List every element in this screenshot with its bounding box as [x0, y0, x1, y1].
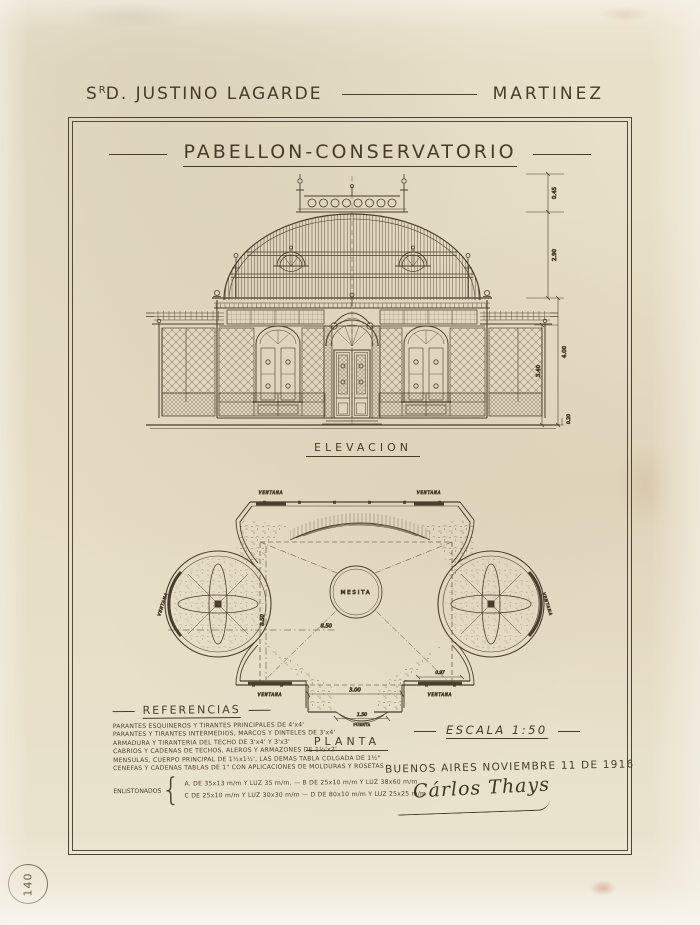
plan-dim-depth: 8.50	[260, 614, 266, 626]
title-dash-left	[109, 154, 167, 155]
enlistonados-label: ENLISTONADOS	[113, 788, 161, 795]
owner-name: SRD. JUSTINO LAGARDE	[86, 84, 322, 104]
dim-wall-outer: 4.00	[562, 345, 568, 358]
wing-left	[146, 311, 224, 418]
owner-title-row: SRD. JUSTINO LAGARDE MARTINEZ	[86, 84, 604, 104]
ground-line	[146, 425, 560, 429]
owner-divider-line	[342, 94, 476, 95]
owner-surname: MARTINEZ	[493, 84, 604, 104]
scale-dash-left	[414, 731, 436, 732]
references-block: REFERENCIAS PARANTES ESQUINEROS Y TIRANT…	[113, 702, 382, 807]
plan-window-left-circle: VENTANA	[156, 592, 168, 617]
dim-plinth: 0.20	[566, 414, 572, 424]
dim-crest: 0.45	[552, 186, 558, 199]
plan-window-bottom-right: VENTANA	[428, 692, 452, 697]
plan-window-bottom-left: VENTANA	[258, 692, 282, 697]
drawing-sheet: SRD. JUSTINO LAGARDE MARTINEZ PABELLON-C…	[0, 0, 700, 925]
wing-right	[480, 311, 558, 418]
enlistonados-row: ENLISTONADOS { A. DE 35x13 m/m Y LUZ 35 …	[113, 774, 381, 806]
plan-dim-width: 8.50	[320, 624, 332, 630]
archive-number-stamp: 140	[8, 864, 48, 904]
scale-row: ESCALA 1:50	[414, 723, 580, 739]
references-title: REFERENCIAS	[143, 703, 241, 719]
plan-dim-side: 0.97	[435, 670, 445, 675]
owner-sup: R	[99, 85, 106, 96]
scale-label: ESCALA 1:50	[446, 723, 548, 739]
references-dash-right	[249, 710, 271, 711]
scale-dash-right	[558, 731, 580, 732]
plan-center-label: MESITA	[341, 590, 372, 596]
paper-stain	[600, 6, 650, 22]
elevation-label: ELEVACION	[288, 441, 438, 457]
enlistonados-line: C DE 25x10 m/m Y LUZ 30x30 m/m — D DE 80…	[184, 789, 426, 803]
main-title-row: PABELLON-CONSERVATORIO	[0, 141, 700, 167]
title-dash-right	[533, 154, 591, 155]
page-title: PABELLON-CONSERVATORIO	[183, 141, 516, 167]
plan-dim-entry: 3.00	[349, 688, 361, 694]
elevation-drawing: 0.45 2.90 4.00 3.40 0.20	[128, 166, 578, 446]
reference-line: CENEFAS Y CADENAS TABLAS DE 1" CON APLIC…	[113, 763, 381, 774]
enlistonados-brace: {	[161, 775, 180, 807]
owner-fullname: JUSTINO LAGARDE	[136, 84, 323, 104]
dome	[224, 214, 480, 300]
references-title-row: REFERENCIAS	[113, 702, 381, 719]
plan-window-top-right: VENTANA	[417, 490, 441, 495]
references-dash-left	[113, 711, 135, 712]
pencil-smudge	[70, 2, 190, 28]
dim-wall-inner: 3.40	[536, 364, 542, 377]
enlistonados-lines: A. DE 35x13 m/m Y LUZ 35 m/m. — B DE 25x…	[184, 777, 426, 803]
paper-stain	[590, 880, 616, 896]
plan-window-top-left: VENTANA	[259, 490, 283, 495]
dim-dome: 2.90	[552, 248, 558, 261]
